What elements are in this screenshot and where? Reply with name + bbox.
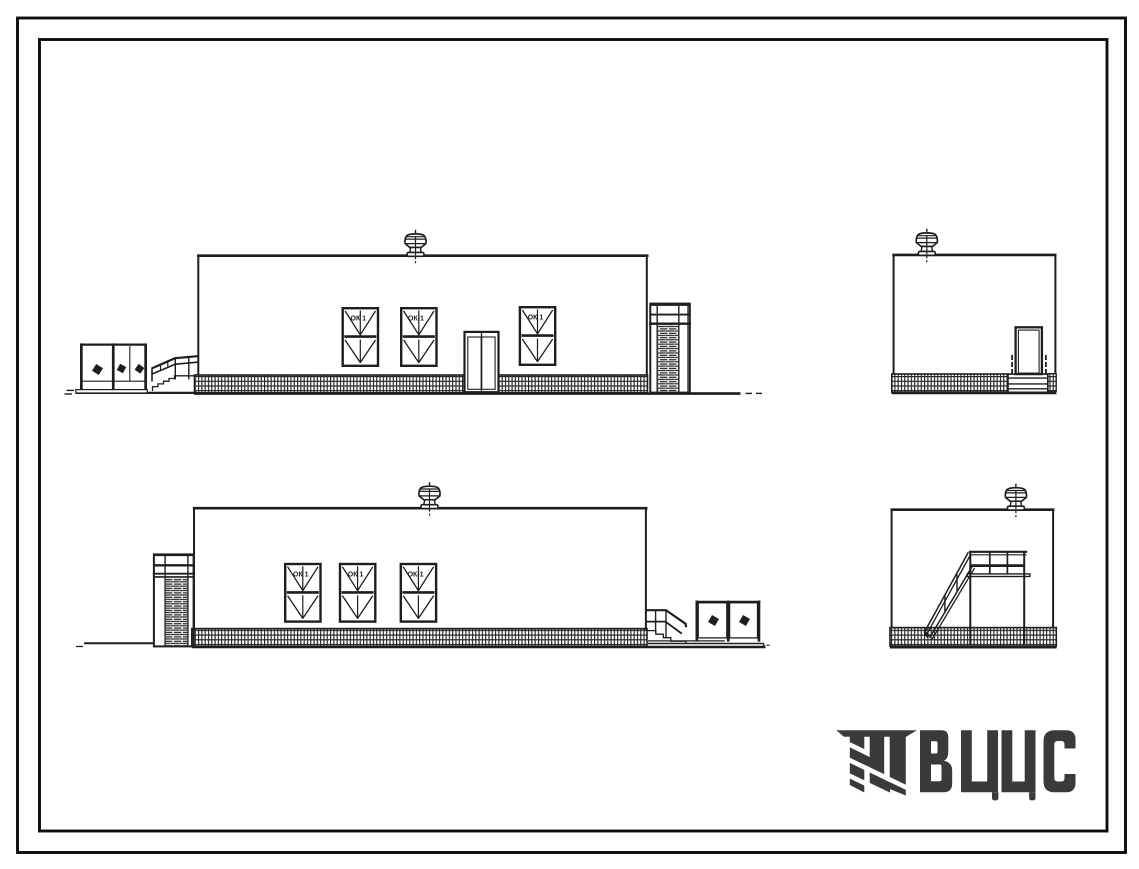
svg-text:ОК 1: ОК 1 (528, 315, 544, 322)
svg-text:ОК 1: ОК 1 (351, 316, 367, 323)
svg-text:ОК-1: ОК-1 (408, 571, 424, 578)
svg-text:ОК-1: ОК-1 (408, 316, 424, 323)
svg-text:ОК 1: ОК 1 (293, 571, 309, 578)
svg-text:ОК 1: ОК 1 (348, 571, 364, 578)
